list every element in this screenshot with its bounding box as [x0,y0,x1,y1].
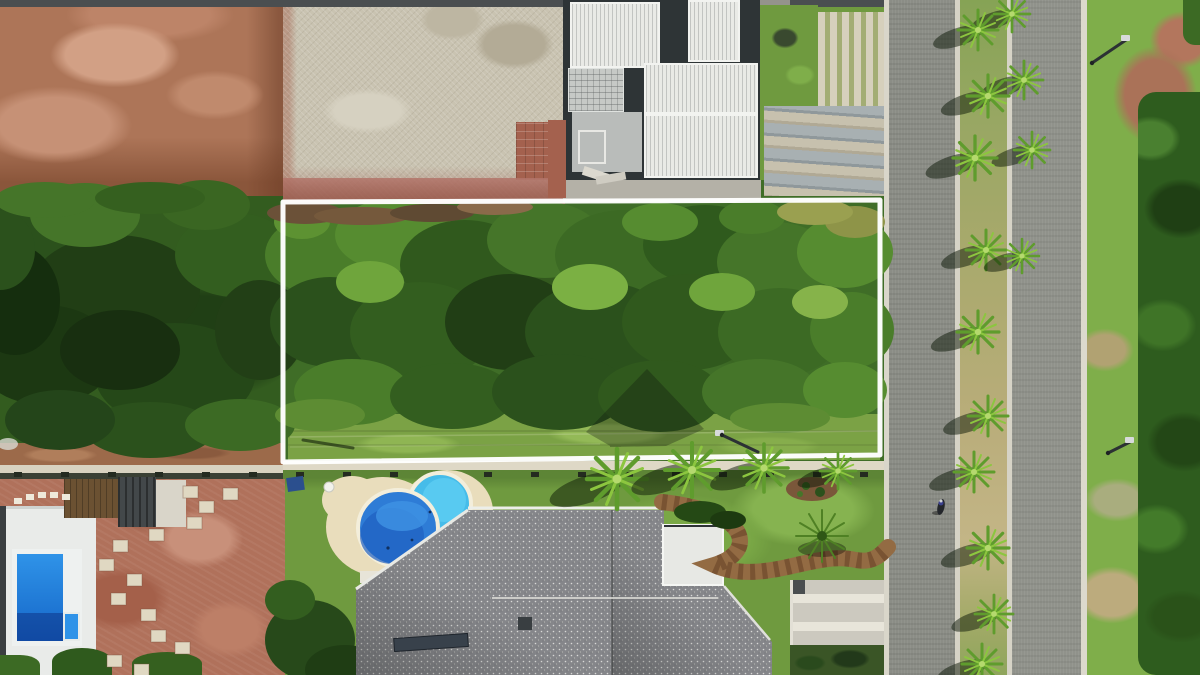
paver-square [183,486,198,498]
lamp-head [1125,437,1134,443]
faint-track-line [290,431,878,437]
stepping-stone [26,494,34,500]
tree-canopy-blob [5,390,115,450]
stepping-stone [62,494,70,500]
palm-tree [934,644,1002,675]
paver-square [187,517,202,529]
paver-square [199,501,214,513]
stepping-stone [14,498,22,504]
fence-post [860,472,868,477]
roof-vent [518,617,532,630]
paver-square [99,559,114,571]
paver-square [113,540,128,552]
paver-square [127,574,142,586]
scene-overlay [0,0,1200,675]
paver-square [111,593,126,605]
garden-ball [324,482,334,492]
palm-tree [923,136,997,184]
paver-square [149,529,164,541]
stepping-stone [50,492,58,498]
palm-tree [926,452,994,496]
palm-tree [989,132,1050,171]
palm-tree [949,595,1013,636]
fence-post [108,472,116,477]
fence-post [155,472,163,477]
paver-square [141,609,156,621]
tree-canopy-blob [777,199,853,225]
fence-post [61,472,69,477]
paver-square [223,488,238,500]
tree-canopy-blob [95,182,205,214]
path-bush [710,511,746,529]
mulch-plant [815,487,825,497]
white-terrace-roof [663,525,723,585]
pool-leaf [386,546,389,549]
debris [0,438,18,450]
tree-canopy-blob [792,285,848,319]
pool-leaf [411,539,414,542]
fence-post [390,472,398,477]
tree-canopy-blob [719,200,785,234]
tree-canopy-blob [622,203,698,241]
paver-squares [14,486,238,675]
fence-post [531,472,539,477]
tree-canopy-blob [60,310,180,390]
blue-tarp [286,476,305,492]
pool-reflection [376,501,428,531]
palm-tree [628,443,719,502]
lamp-pole [1092,40,1126,63]
palm-tree [940,396,1008,440]
lamp-head [1121,35,1130,41]
median-palms [923,0,1050,675]
paver-square [134,664,149,675]
lamp-pole [722,435,758,452]
lamp-pole [1108,442,1130,453]
tree-canopy-blob [275,399,365,431]
cycad-palm [796,510,848,562]
lamp-base [720,433,724,437]
fence-post [484,472,492,477]
lamp-base [1090,61,1094,65]
tree-canopy-blob [552,264,628,310]
paver-square [107,655,122,667]
tree-canopy-blob [265,580,315,620]
tree-canopy-blob [689,273,755,311]
stepping-stone [38,492,46,498]
lamp-base [1106,451,1110,455]
tree-canopy-blob [336,261,404,303]
mulch-plant [797,491,803,497]
motorcycle-rider [932,498,946,515]
paver-square [175,642,190,654]
watermark-bar [610,414,621,447]
paver-square [151,630,166,642]
palm-tree [928,311,999,357]
tree-canopy-blob [730,403,830,433]
fence-post [14,472,22,477]
pool-leaf [429,511,432,514]
palm-tree [938,527,1009,573]
rider-helmet [940,500,943,503]
aerial-photo [0,0,1200,675]
tree-canopy-blob [185,399,295,451]
fence-post [202,472,210,477]
fence-post [249,472,257,477]
